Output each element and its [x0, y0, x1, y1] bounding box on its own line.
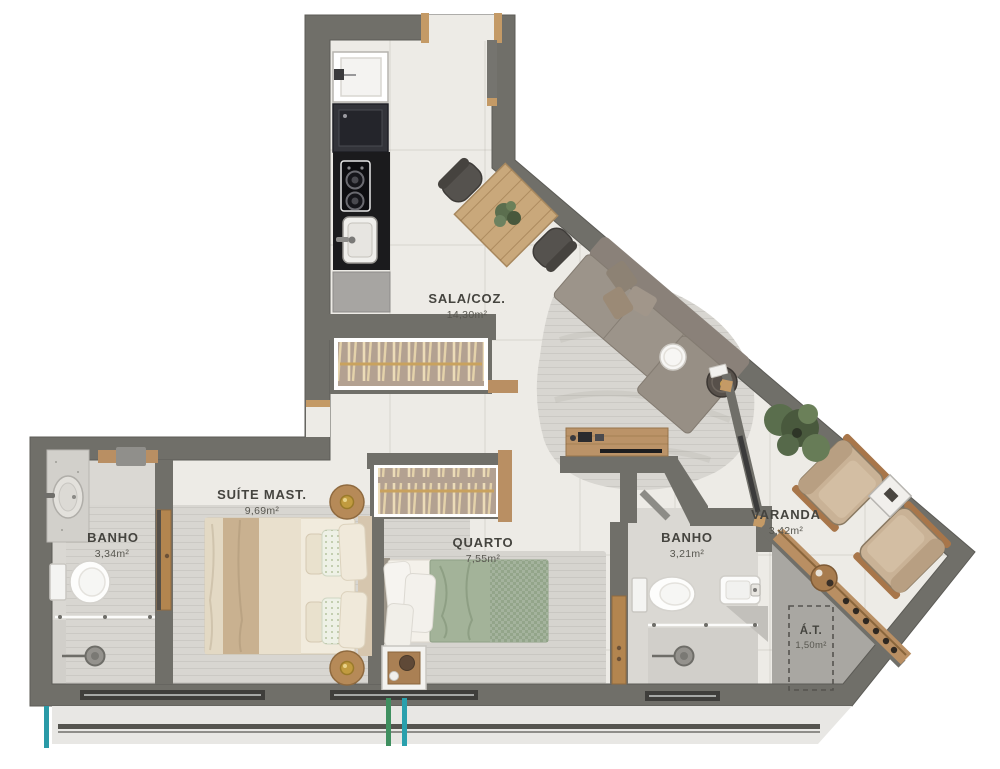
- coffee-table: [660, 344, 686, 370]
- room-area-at: 1,50m²: [795, 640, 826, 651]
- quarto-bed: [383, 558, 548, 649]
- wardrobe-suite: [367, 450, 512, 522]
- room-area-banho2: 3,21m²: [670, 548, 705, 560]
- window-track: [58, 724, 820, 729]
- kitchen-cabinet: [333, 272, 390, 312]
- cooktop: [341, 161, 370, 211]
- toilet: [632, 577, 695, 612]
- towel: [116, 447, 146, 466]
- serving-tray: [811, 565, 837, 591]
- banho2-door: [612, 596, 626, 684]
- quarto-nightstand: [382, 646, 426, 690]
- room-label-banho2: BANHO: [661, 530, 713, 545]
- room-label-banho1: BANHO: [87, 530, 139, 545]
- suite-nightstand: [330, 651, 364, 685]
- oven: [333, 104, 388, 152]
- toilet: [50, 561, 110, 603]
- faucet: [44, 493, 55, 498]
- room-area-varanda: 3,42m²: [769, 525, 804, 537]
- suite-doorway: [306, 400, 330, 437]
- suite-bed: [205, 516, 372, 656]
- floor-plan-canvas: SALA/COZ. 14,30m² SUÍTE MAST. 9,69m² BAN…: [0, 0, 1000, 769]
- room-label-sala: SALA/COZ.: [428, 291, 505, 306]
- suite-nightstand: [330, 485, 364, 519]
- room-area-suite: 9,69m²: [245, 505, 280, 517]
- room-label-varanda: VARANDA: [751, 507, 821, 522]
- closet-shelf: [488, 380, 518, 393]
- pipe-teal: [44, 706, 49, 748]
- kitchen-run: [333, 52, 390, 312]
- pipe-teal: [402, 698, 407, 746]
- room-area-quarto: 7,55m²: [466, 553, 501, 565]
- tv-console: [566, 428, 668, 456]
- wardrobe-sala: [328, 314, 518, 394]
- speaker: [578, 432, 592, 442]
- floor-plan-drawing: SALA/COZ. 14,30m² SUÍTE MAST. 9,69m² BAN…: [0, 0, 1000, 769]
- entry-door-leaf: [487, 40, 497, 100]
- sink: [720, 576, 760, 604]
- room-label-at: Á.T.: [800, 624, 822, 637]
- pipe-green: [386, 698, 391, 746]
- vanity: [44, 450, 89, 542]
- room-area-sala: 14,30m²: [447, 309, 488, 321]
- tv: [600, 449, 662, 453]
- room-label-suite: SUÍTE MAST.: [217, 487, 307, 502]
- room-area-banho1: 3,34m²: [95, 548, 130, 560]
- room-label-quarto: QUARTO: [453, 535, 514, 550]
- washing-machine: [333, 52, 388, 102]
